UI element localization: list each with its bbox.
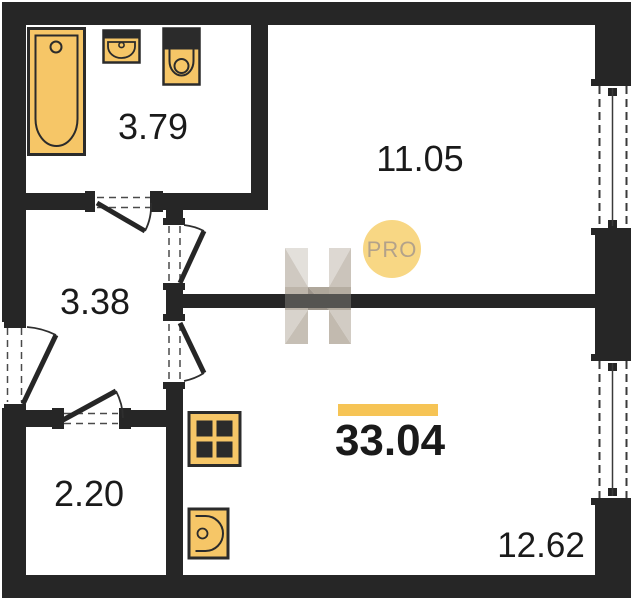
wall-bathroom-right <box>251 25 268 210</box>
wall-middle <box>183 294 595 308</box>
door-leaf-entrance <box>23 335 56 404</box>
area-label-kitchen-living: 12.62 <box>497 526 585 565</box>
wall-right-c <box>595 505 631 598</box>
washbasin <box>104 31 140 63</box>
wall-right-a <box>595 2 631 79</box>
total-area-accent-bar <box>338 404 438 416</box>
wall-core-c <box>166 384 183 575</box>
area-label-storage: 2.20 <box>54 473 124 514</box>
bathtub <box>29 29 85 155</box>
door-post <box>119 408 131 429</box>
room-area-labels: 3.79 11.05 3.38 2.20 12.62 <box>54 106 585 565</box>
burner <box>217 442 233 458</box>
area-label-hallway: 3.38 <box>60 281 130 322</box>
door-leaf-living <box>180 231 204 283</box>
door-post <box>85 191 95 212</box>
watermark-wall-bleed <box>285 294 351 308</box>
door-post <box>4 317 26 328</box>
door-post <box>163 283 185 290</box>
door-leaf-kitchen <box>180 323 204 373</box>
area-label-living: 11.05 <box>376 138 463 179</box>
window-living <box>600 86 627 228</box>
door-leaf-storage <box>63 391 116 420</box>
door-post <box>150 191 163 212</box>
window-lintel <box>591 79 631 86</box>
wall-bottom <box>2 575 631 598</box>
door-post <box>4 404 26 415</box>
wall-left-upper <box>2 2 26 322</box>
total-area-label: 33.04 <box>335 416 446 465</box>
door-post <box>163 314 185 321</box>
area-label-bathroom: 3.79 <box>118 106 188 147</box>
pro-badge-label: PRO <box>367 237 418 262</box>
window-lintel <box>591 354 631 361</box>
wall-right-b <box>595 235 631 354</box>
floor-plan: PRO 3.79 11.05 3.38 2.20 12.62 33.04 <box>0 0 633 600</box>
wall-core-b <box>166 288 183 318</box>
total-area: 33.04 <box>335 404 446 465</box>
floor-plan-drawing: PRO 3.79 11.05 3.38 2.20 12.62 33.04 <box>0 0 633 600</box>
window-lintel <box>591 228 631 235</box>
wall-bathroom-bottom-a <box>26 193 95 210</box>
pro-badge: PRO <box>363 220 421 278</box>
door-post <box>163 382 185 389</box>
burner <box>197 421 213 437</box>
kitchen-sink <box>189 509 228 558</box>
wall-storage-top-b <box>125 410 166 427</box>
wall-bathroom-bottom-c <box>183 193 251 210</box>
burner <box>217 421 233 437</box>
stove <box>189 413 240 466</box>
toilet <box>164 29 200 85</box>
door-post <box>163 218 185 225</box>
burner <box>197 442 213 458</box>
wall-top <box>2 2 631 25</box>
window-lintel <box>591 498 631 505</box>
wall-left-lower <box>2 408 26 598</box>
window-kitchen <box>600 361 627 498</box>
